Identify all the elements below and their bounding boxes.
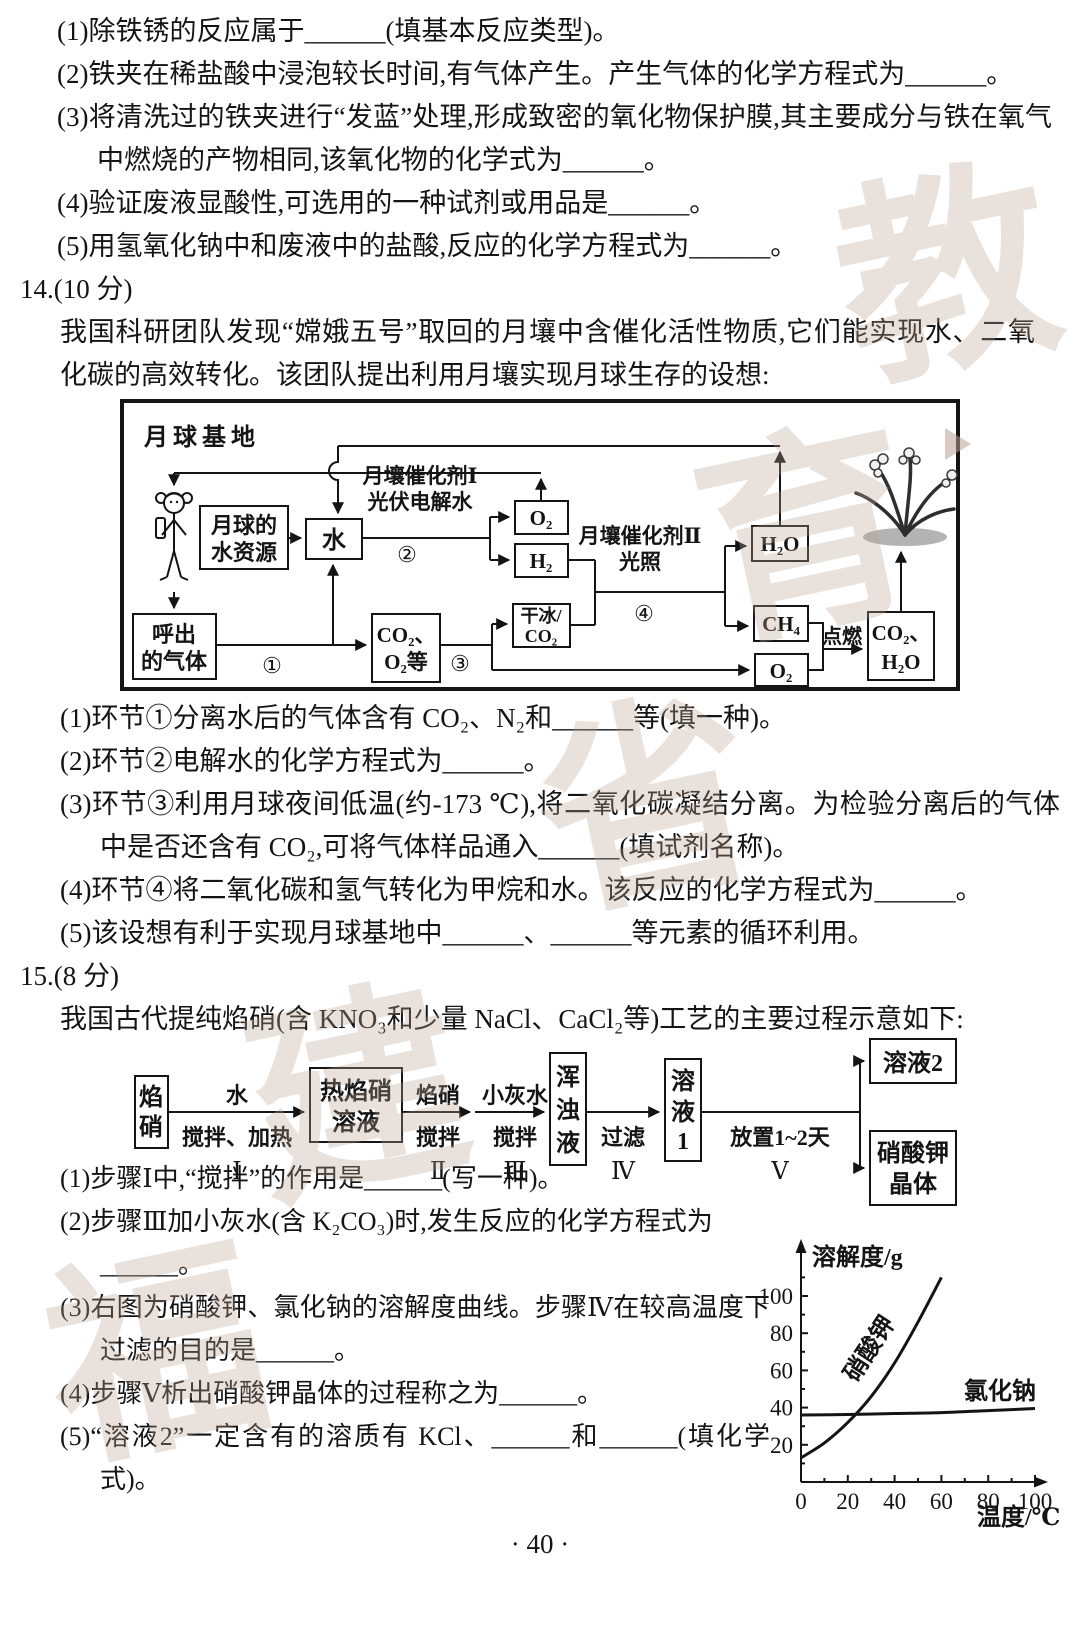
- svg-text:H₂O: H₂O: [882, 650, 921, 674]
- question-item: (4)环节④将二氧化碳和氢气转化为甲烷和水。该反应的化学方程式为______。: [60, 869, 1060, 912]
- curve-series-1: [801, 1409, 1035, 1416]
- box-o2-electrolysis: O₂: [515, 501, 568, 534]
- svg-text:焰: 焰: [139, 1083, 163, 1111]
- svg-text:H₂: H₂: [530, 549, 553, 573]
- y-axis-arrow: [796, 1239, 807, 1253]
- box-h2: H₂: [515, 544, 568, 577]
- purification-flow-diagram: 焰 硝 热焰硝 溶液 浑 浊 液: [120, 1031, 1000, 1143]
- flow-step-num: Ⅰ: [232, 1159, 241, 1185]
- svg-text:硝酸钾: 硝酸钾: [877, 1139, 949, 1167]
- svg-text:CO₂: CO₂: [525, 626, 557, 646]
- catalyst2-label: 月壤催化剂Ⅱ: [578, 524, 702, 548]
- box-exhaled-gas: 呼出 的气体: [133, 614, 216, 679]
- flow-step-below: 搅拌: [493, 1125, 537, 1150]
- question-item: (5)该设想有利于实现月球基地中______、______等元素的循环利用。: [60, 912, 1060, 955]
- svg-text:液: 液: [671, 1098, 695, 1126]
- question-item: (4)步骤Ⅴ析出硝酸钾晶体的过程称之为______。: [60, 1372, 770, 1415]
- x-axis-title: 温度/℃: [977, 1503, 1060, 1530]
- catalyst1-label: 月壤催化剂Ⅰ: [362, 464, 478, 488]
- svg-text:液: 液: [556, 1129, 580, 1157]
- question-number: 15.(8 分): [20, 955, 1065, 998]
- y-tick-label: 40: [770, 1396, 793, 1421]
- y-tick-label: 60: [770, 1358, 793, 1383]
- flow-step-above: 水: [226, 1083, 249, 1108]
- box-co2-o2: CO₂、 O₂等: [372, 614, 440, 682]
- flow-step-num: Ⅲ: [503, 1159, 526, 1185]
- y-tick-label: 20: [770, 1433, 793, 1458]
- svg-text:O₂: O₂: [530, 506, 553, 530]
- svg-text:浑: 浑: [556, 1064, 580, 1091]
- svg-text:月球的: 月球的: [210, 513, 277, 538]
- solubility-chart-svg: 20406080100020406080100硝酸钾氯化钠溶解度/g温度/℃: [740, 1185, 1060, 1530]
- flow-box-turbid: 浑 浊 液: [550, 1053, 586, 1165]
- step2-label: ②: [397, 542, 417, 567]
- svg-text:O₂: O₂: [770, 659, 793, 683]
- flow-step-below: 放置1~2天: [729, 1125, 830, 1150]
- x-tick-label: 40: [883, 1489, 906, 1514]
- exam-page: 教 育 省 建 福 (1)除铁锈的反应属于______(填基本反应类型)。 (2…: [0, 0, 1080, 1647]
- svg-text:1: 1: [677, 1129, 689, 1155]
- svg-text:O₂等: O₂等: [384, 650, 428, 674]
- question-item: (3)将清洗过的铁夹进行“发蓝”处理,形成致密的氧化物保护膜,其主要成分与铁在氧…: [57, 96, 1052, 182]
- svg-text:H₂O: H₂O: [761, 532, 800, 556]
- flow-box-solution2: 溶液2: [870, 1039, 956, 1083]
- lunar-base-diagram-svg: 月球基地: [120, 399, 960, 691]
- question-13-items: (1)除铁锈的反应属于______(填基本反应类型)。 (2)铁夹在稀盐酸中浸泡…: [57, 0, 1052, 268]
- step1-label: ①: [262, 653, 282, 678]
- flow-step-below: 过滤: [601, 1125, 645, 1150]
- box-h2o: H₂O: [752, 526, 808, 561]
- question-number: 14.(10 分): [20, 268, 1065, 311]
- box-co2-h2o: CO₂、 H₂O: [868, 612, 934, 680]
- page-number: · 40 ·: [0, 1529, 1080, 1560]
- svg-text:硝: 硝: [139, 1114, 163, 1141]
- flow-box-solution1: 溶 液 1: [665, 1059, 701, 1161]
- flow-arrows: [168, 1061, 864, 1168]
- box-dry-ice: 干冰/ CO₂: [513, 604, 570, 647]
- flow-box-hot-solution: 热焰硝 溶液: [310, 1068, 402, 1142]
- solubility-chart: 20406080100020406080100硝酸钾氯化钠溶解度/g温度/℃: [740, 1185, 1060, 1530]
- ignite-label: 点燃: [822, 624, 863, 648]
- flow-step-num: Ⅳ: [611, 1159, 636, 1185]
- flow-step-num: Ⅱ: [430, 1159, 446, 1185]
- series-label: 硝酸钾: [838, 1311, 901, 1387]
- svg-text:水: 水: [322, 527, 347, 554]
- catalyst2-label: 光照: [618, 550, 661, 574]
- svg-text:热焰硝: 热焰硝: [320, 1077, 392, 1105]
- box-water-resource: 月球的 水资源: [200, 506, 288, 569]
- svg-text:溶液2: 溶液2: [883, 1049, 943, 1077]
- x-tick-label: 0: [795, 1489, 807, 1514]
- flow-step-below: 搅拌、加热: [182, 1125, 292, 1150]
- question-item: (4)验证废液显酸性,可选用的一种试剂或用品是______。: [57, 182, 1052, 225]
- flow-step-num: Ⅴ: [770, 1159, 789, 1185]
- x-tick-label: 20: [836, 1489, 859, 1514]
- y-tick-label: 100: [759, 1284, 794, 1309]
- step3-label: ③: [450, 651, 470, 676]
- series-label: 氯化钠: [964, 1377, 1036, 1405]
- svg-text:的气体: 的气体: [141, 649, 208, 674]
- question-item: (1)除铁锈的反应属于______(填基本反应类型)。: [57, 10, 1052, 53]
- question-item: (2)环节②电解水的化学方程式为______。: [60, 740, 1060, 783]
- svg-text:呼出: 呼出: [152, 622, 196, 647]
- x-tick-label: 60: [930, 1489, 953, 1514]
- box-water: 水: [306, 519, 362, 559]
- diagram-title: 月球基地: [143, 424, 260, 451]
- flow-box-saltpeter: 焰 硝: [135, 1076, 168, 1148]
- box-ch4: CH₄: [754, 606, 808, 641]
- svg-text:干冰/: 干冰/: [520, 605, 562, 626]
- question-item: (5)“溶液2”一定含有的溶质有 KCl、______和______(填化学式)…: [60, 1415, 770, 1501]
- svg-text:CH₄: CH₄: [762, 612, 801, 636]
- svg-text:溶液: 溶液: [332, 1108, 380, 1136]
- question-item: (3)环节③利用月球夜间低温(约-173 ℃),将二氧化碳凝结分离。为检验分离后…: [60, 783, 1060, 869]
- flow-step-above: 焰硝: [416, 1083, 460, 1108]
- flow-step-below: 搅拌: [416, 1125, 460, 1150]
- lunar-base-diagram: 月球基地: [120, 399, 960, 691]
- y-tick-label: 80: [770, 1321, 793, 1346]
- question-item: (5)用氢氧化钠中和废液中的盐酸,反应的化学方程式为______。: [57, 225, 1052, 268]
- svg-text:CO₂、: CO₂、: [872, 621, 931, 645]
- question-item: (2)铁夹在稀盐酸中浸泡较长时间,有气体产生。产生气体的化学方程式为______…: [57, 53, 1052, 96]
- question-intro: 我国科研团队发现“嫦娥五号”取回的月壤中含催化活性物质,它们能实现水、二氧化碳的…: [60, 311, 1035, 397]
- svg-text:溶: 溶: [671, 1067, 695, 1095]
- question-item: (3)右图为硝酸钾、氯化钠的溶解度曲线。步骤Ⅳ在较高温度下过滤的目的是_____…: [60, 1286, 770, 1372]
- x-axis-arrow: [1034, 1477, 1048, 1488]
- question-14-items: (1)环节①分离水后的气体含有 CO₂、N₂和______等(填一种)。 (2)…: [60, 697, 1060, 955]
- y-axis-title: 溶解度/g: [812, 1243, 903, 1271]
- question-item: (1)环节①分离水后的气体含有 CO₂、N₂和______等(填一种)。: [60, 697, 1060, 740]
- catalyst1-label: 光伏电解水: [367, 490, 474, 514]
- box-o2-bottom: O₂: [755, 654, 808, 686]
- question-14: 14.(10 分) 我国科研团队发现“嫦娥五号”取回的月壤中含催化活性物质,它们…: [20, 268, 1065, 955]
- svg-text:CO₂、: CO₂、: [377, 623, 436, 647]
- svg-text:水资源: 水资源: [211, 540, 277, 565]
- step4-label: ④: [634, 601, 654, 626]
- svg-text:浊: 浊: [556, 1097, 580, 1124]
- flow-step-above: 小灰水: [482, 1083, 549, 1108]
